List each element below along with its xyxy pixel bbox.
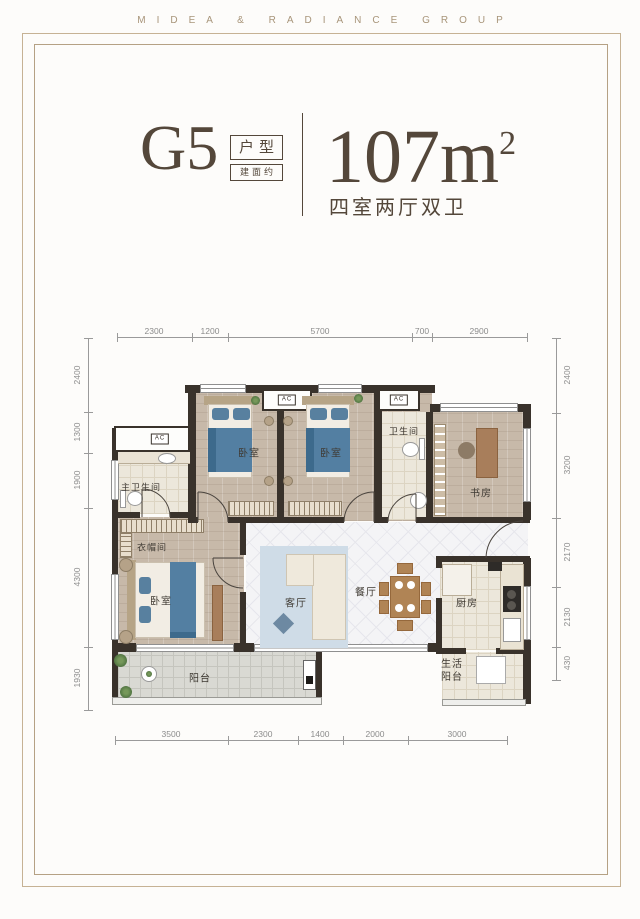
dimension-value: 4300 xyxy=(72,557,82,597)
dimension-tick xyxy=(228,736,229,745)
dimension-tick xyxy=(84,412,93,413)
dimension-value: 2300 xyxy=(134,326,174,336)
dimension-value: 3500 xyxy=(151,729,191,739)
dimension-line xyxy=(117,337,527,338)
dimension-value: 5700 xyxy=(300,326,340,336)
dimension-tick xyxy=(117,333,118,342)
dimension-tick xyxy=(408,736,409,745)
dimension-tick xyxy=(84,647,93,648)
room-label-master-bathroom: 主卫生间 xyxy=(121,481,161,494)
floor-plan-page: MIDEA & RADIANCE GROUP G5 户型 建面约 107m2 四… xyxy=(0,0,640,919)
room-label-living-room: 客厅 xyxy=(285,595,307,610)
dimension-value: 700 xyxy=(402,326,442,336)
dimension-value: 2900 xyxy=(459,326,499,336)
room-label-dining-room: 餐厅 xyxy=(355,584,377,599)
room-label-kitchen: 厨房 xyxy=(456,595,478,610)
dimension-value: 430 xyxy=(562,643,572,683)
dimension-value: 3000 xyxy=(437,729,477,739)
room-label-bathroom: 卫生间 xyxy=(389,425,419,438)
room-label-study: 书房 xyxy=(470,485,492,500)
dimension-tick xyxy=(552,680,561,681)
dimension-tick xyxy=(552,413,561,414)
door-arcs xyxy=(0,0,640,919)
room-label-bedroom: 卧室 xyxy=(238,445,260,460)
dimension-line xyxy=(556,338,557,680)
room-label-cloakroom: 衣帽间 xyxy=(137,541,167,554)
dimension-tick xyxy=(84,710,93,711)
room-label-master-bedroom: 卧室 xyxy=(150,593,172,608)
room-label-balcony: 阳台 xyxy=(189,670,211,685)
dimension-value: 1300 xyxy=(72,412,82,452)
dimension-tick xyxy=(84,453,93,454)
dimension-line xyxy=(88,338,89,710)
dimension-value: 1200 xyxy=(190,326,230,336)
dimension-value: 2400 xyxy=(562,355,572,395)
dimension-tick xyxy=(552,338,561,339)
dimension-tick xyxy=(298,736,299,745)
dimension-tick xyxy=(552,587,561,588)
dimension-tick xyxy=(507,736,508,745)
dimension-tick xyxy=(552,518,561,519)
dimension-line xyxy=(115,740,507,741)
dimension-value: 2400 xyxy=(72,355,82,395)
room-label-bedroom: 卧室 xyxy=(320,445,342,460)
dimension-value: 2170 xyxy=(562,532,572,572)
dimension-value: 2000 xyxy=(355,729,395,739)
dimension-tick xyxy=(115,736,116,745)
dimension-tick xyxy=(527,333,528,342)
dimension-value: 3200 xyxy=(562,445,572,485)
dimension-tick xyxy=(343,736,344,745)
dimension-value: 2300 xyxy=(243,729,283,739)
room-label-service-balcony: 生活阳台 xyxy=(440,658,464,684)
dimension-tick xyxy=(84,508,93,509)
dimension-value: 2130 xyxy=(562,597,572,637)
dimension-tick xyxy=(552,647,561,648)
dimension-tick xyxy=(84,338,93,339)
dimension-value: 1900 xyxy=(72,460,82,500)
dimension-value: 1400 xyxy=(300,729,340,739)
dimension-value: 1930 xyxy=(72,658,82,698)
